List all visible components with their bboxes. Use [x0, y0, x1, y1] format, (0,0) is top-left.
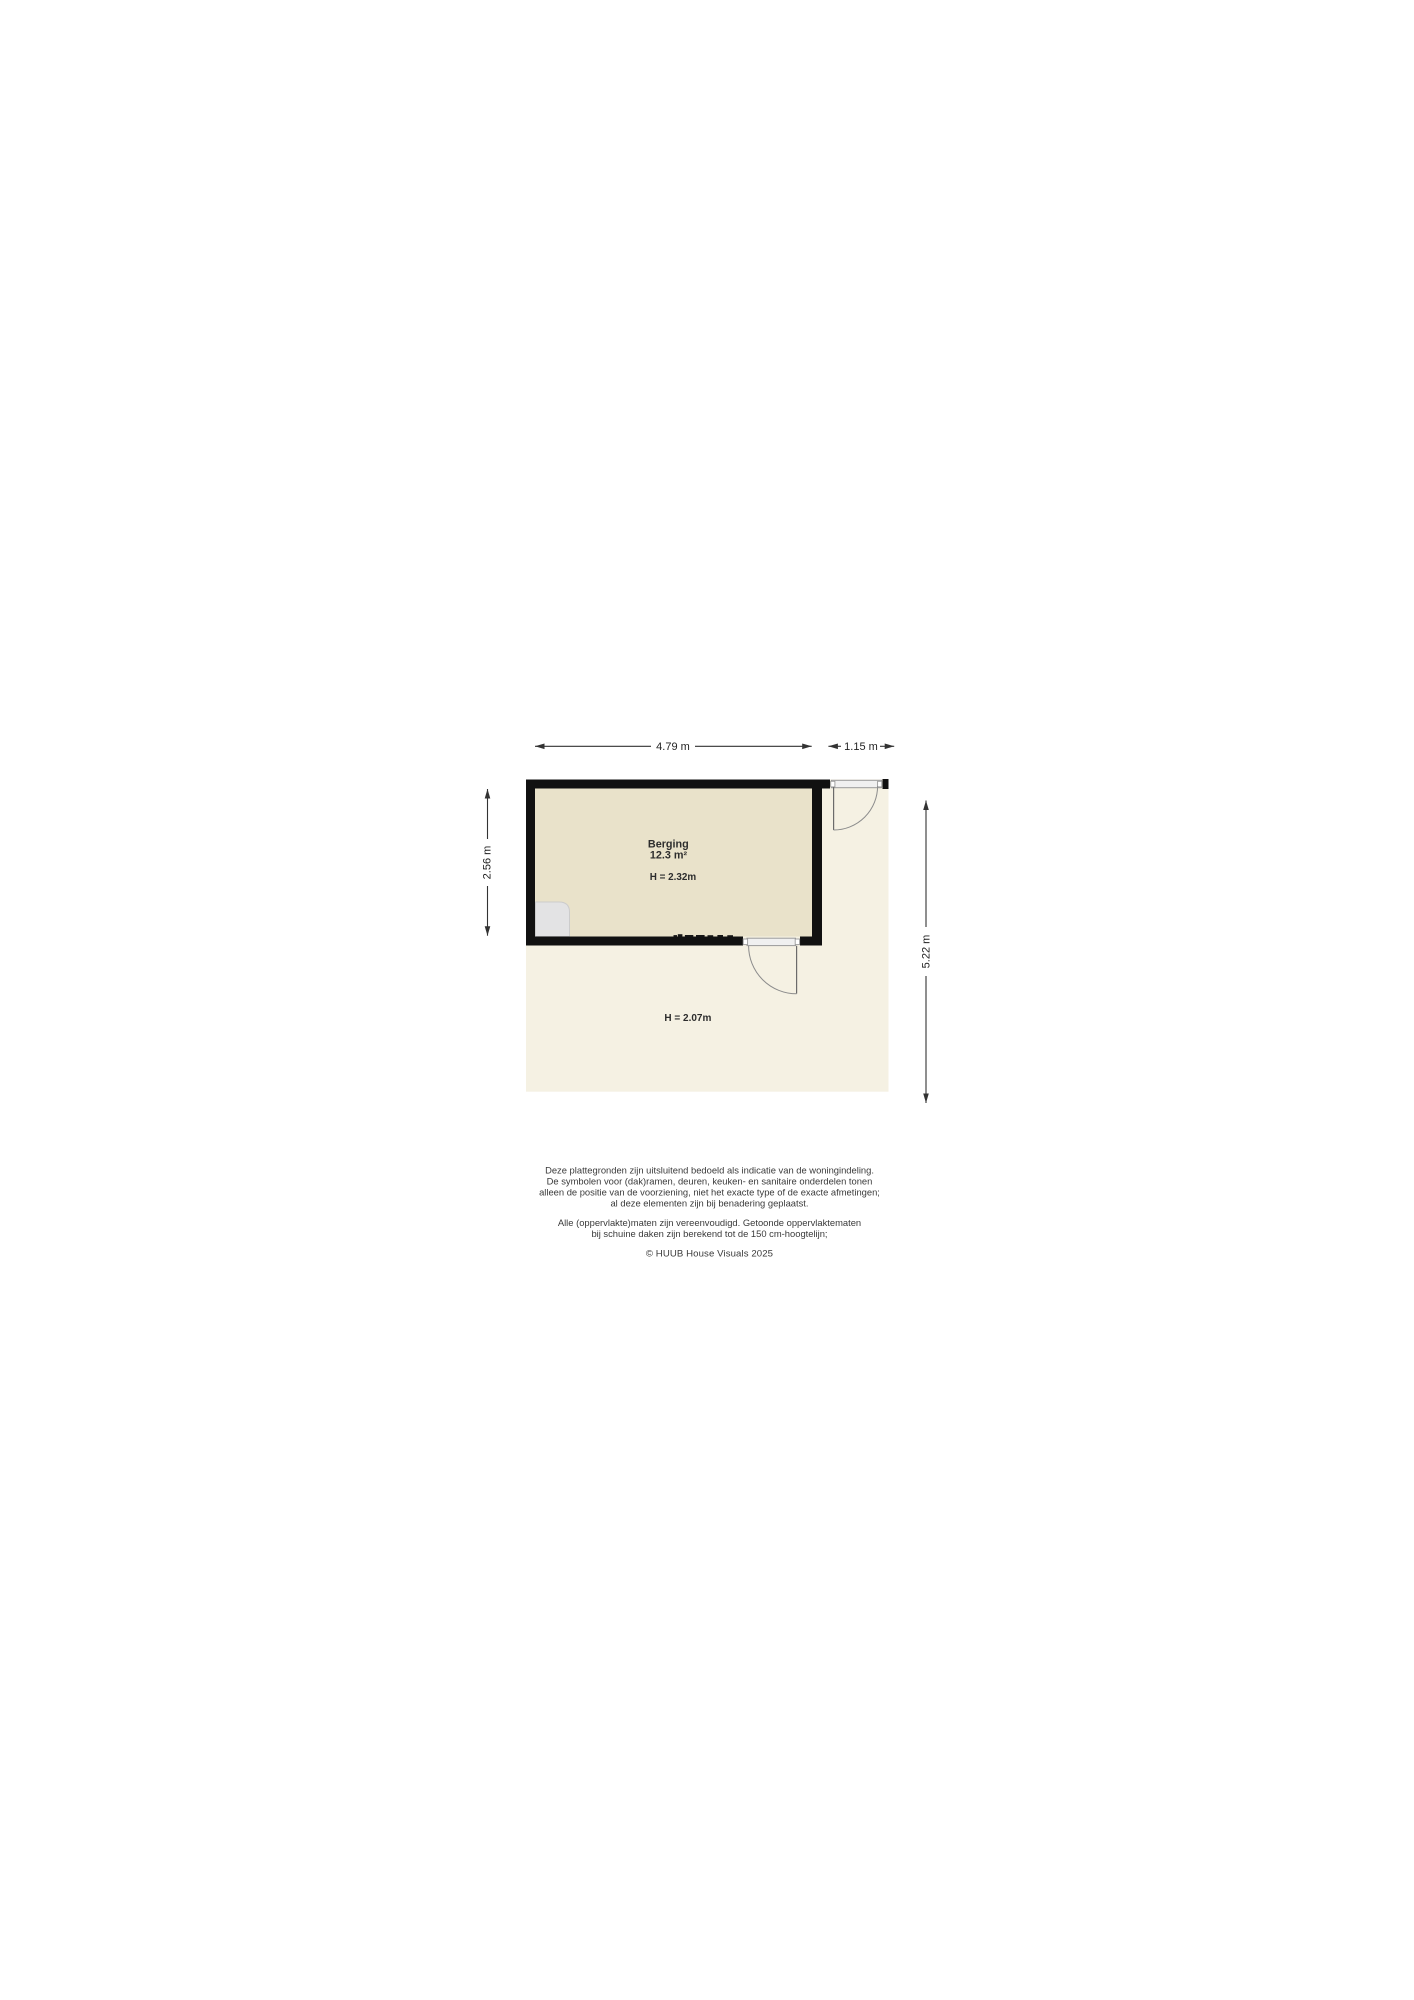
- svg-text:5.22 m: 5.22 m: [920, 935, 932, 969]
- svg-text:1.15 m: 1.15 m: [844, 741, 878, 753]
- svg-text:Deze plattegronden zijn uitslu: Deze plattegronden zijn uitsluitend bedo…: [545, 1164, 874, 1175]
- svg-text:4.79 m: 4.79 m: [656, 741, 690, 753]
- svg-text:H = 2.07m: H = 2.07m: [664, 1013, 711, 1024]
- svg-text:De symbolen voor (dak)ramen, d: De symbolen voor (dak)ramen, deuren, keu…: [547, 1176, 873, 1187]
- svg-text:al deze elementen zijn bij ben: al deze elementen zijn bij benadering ge…: [610, 1197, 808, 1208]
- svg-text:alleen de positie van de voorz: alleen de positie van de voorziening, ni…: [539, 1187, 880, 1198]
- svg-text:12.3 m²: 12.3 m²: [650, 849, 688, 861]
- svg-text:Alle (oppervlakte)maten zijn v: Alle (oppervlakte)maten zijn vereenvoudi…: [558, 1217, 861, 1228]
- svg-text:2.56 m: 2.56 m: [482, 846, 494, 880]
- svg-text:bij schuine daken zijn bereken: bij schuine daken zijn berekend tot de 1…: [591, 1228, 827, 1239]
- svg-text:H = 2.32m: H = 2.32m: [650, 872, 697, 883]
- svg-text:© HUUB House Visuals 2025: © HUUB House Visuals 2025: [646, 1249, 773, 1260]
